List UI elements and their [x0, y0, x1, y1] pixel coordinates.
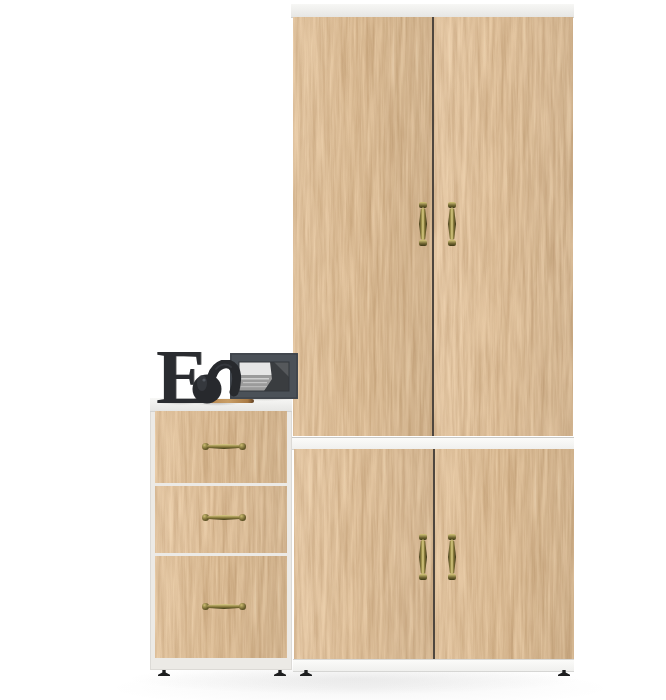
- upper-right-door-handle: [448, 202, 456, 246]
- lower-right-door-handle: [448, 534, 456, 580]
- handle-cap: [448, 240, 456, 246]
- drawer-1-handle: [203, 442, 245, 451]
- handle-stem: [448, 207, 456, 241]
- handle-bar: [206, 515, 242, 520]
- handle-stem: [448, 539, 456, 575]
- wardrobe-lower-door-left: [294, 449, 433, 659]
- handle-knob: [239, 443, 246, 450]
- lower-left-door-handle: [419, 534, 427, 580]
- handle-stem: [419, 207, 427, 241]
- drawer-chest: [150, 398, 292, 670]
- door-shading: [293, 17, 432, 436]
- handle-knob: [239, 514, 246, 521]
- wardrobe-upper-doors: [293, 17, 573, 436]
- handle-stem: [419, 539, 427, 575]
- handle-cap: [419, 240, 427, 246]
- handle-cap: [448, 574, 456, 580]
- product-image: E: [0, 0, 666, 700]
- elephant-figurine: [192, 360, 242, 404]
- handle-knob: [239, 603, 246, 610]
- wardrobe: [291, 4, 574, 676]
- wardrobe-top-edge: [291, 4, 574, 18]
- handle-bar: [206, 604, 242, 609]
- drawer-3-handle: [203, 602, 245, 611]
- drawer-2-handle: [203, 513, 245, 522]
- wardrobe-base: [293, 659, 574, 672]
- upper-left-door-handle: [419, 202, 427, 246]
- handle-bar: [206, 444, 242, 449]
- door-shading: [294, 449, 433, 659]
- wardrobe-upper-door-left: [293, 17, 432, 436]
- wardrobe-lower-doors: [294, 449, 574, 659]
- handle-cap: [419, 574, 427, 580]
